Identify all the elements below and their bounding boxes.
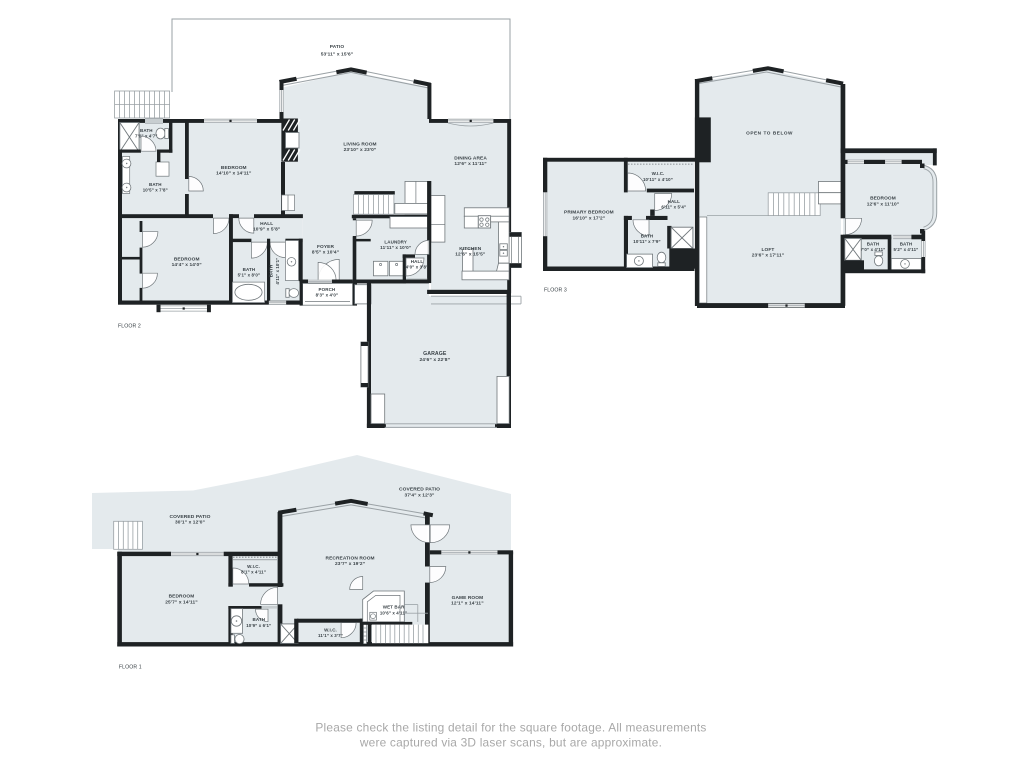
svg-text:53’11” x 15’6”: 53’11” x 15’6” [321, 52, 354, 58]
svg-text:10’9” x 5’8”: 10’9” x 5’8” [253, 227, 281, 233]
svg-text:HALL: HALL [668, 199, 681, 204]
svg-text:GARAGE: GARAGE [423, 351, 447, 357]
svg-text:LIVING ROOM: LIVING ROOM [343, 142, 376, 148]
svg-text:14’10” x 14’11”: 14’10” x 14’11” [216, 171, 252, 177]
svg-text:were captured via 3D laser sca: were captured via 3D laser scans, but ar… [359, 736, 662, 750]
svg-text:12’6” x 11’10”: 12’6” x 11’10” [867, 202, 900, 208]
svg-text:12’6” x 15’5”: 12’6” x 15’5” [455, 252, 486, 258]
svg-text:DINING AREA: DINING AREA [454, 156, 487, 162]
svg-text:5’2” x 4’11”: 5’2” x 4’11” [894, 247, 919, 252]
svg-text:11’11” x 10’0”: 11’11” x 10’0” [380, 245, 411, 250]
svg-text:7’0” x 4’7”: 7’0” x 4’7” [135, 134, 158, 139]
svg-text:LOFT: LOFT [762, 247, 775, 253]
svg-text:25’7” x 14’11”: 25’7” x 14’11” [165, 599, 198, 605]
svg-text:Please check the listing detai: Please check the listing detail for the … [315, 721, 706, 735]
svg-text:OPEN TO BELOW: OPEN TO BELOW [746, 131, 793, 136]
svg-text:BATH: BATH [269, 265, 274, 278]
svg-text:COVERED PATIO: COVERED PATIO [399, 487, 440, 493]
svg-text:PATIO: PATIO [330, 44, 345, 50]
svg-text:BATH: BATH [253, 617, 266, 622]
svg-text:6’11” x 5’4”: 6’11” x 5’4” [661, 205, 686, 210]
svg-text:BATH: BATH [140, 128, 153, 133]
svg-text:GAME ROOM: GAME ROOM [452, 595, 484, 601]
svg-text:11’1” x 3’7”: 11’1” x 3’7” [318, 633, 343, 638]
svg-text:12’6” x 11’11”: 12’6” x 11’11” [454, 161, 487, 167]
svg-text:W.I.C.: W.I.C. [324, 628, 337, 633]
svg-text:COVERED PATIO: COVERED PATIO [169, 514, 210, 520]
svg-text:BATH: BATH [900, 242, 913, 247]
svg-text:LAUNDRY: LAUNDRY [384, 240, 407, 245]
svg-text:14’4” x 14’0”: 14’4” x 14’0” [172, 262, 203, 268]
svg-text:10’11” x 4’10”: 10’11” x 4’10” [643, 177, 673, 182]
svg-text:10’11” x 7’9”: 10’11” x 7’9” [633, 239, 660, 244]
svg-text:FOYER: FOYER [317, 244, 334, 250]
svg-text:PRIMARY BEDROOM: PRIMARY BEDROOM [564, 210, 614, 216]
svg-text:24’6” x 22’8”: 24’6” x 22’8” [419, 357, 450, 363]
svg-text:W.I.C.: W.I.C. [652, 171, 665, 176]
svg-text:BEDROOM: BEDROOM [870, 196, 896, 202]
svg-text:HALL: HALL [260, 221, 273, 227]
svg-text:23’10” x 23’0”: 23’10” x 23’0” [344, 147, 377, 153]
svg-text:8’3” x 4’0”: 8’3” x 4’0” [316, 293, 339, 298]
svg-text:12’1” x 14’11”: 12’1” x 14’11” [451, 601, 484, 607]
svg-text:BEDROOM: BEDROOM [169, 594, 195, 600]
svg-text:FLOOR 1: FLOOR 1 [119, 665, 142, 671]
svg-text:RECREATION ROOM: RECREATION ROOM [326, 556, 375, 562]
svg-text:8’5” x 10’4”: 8’5” x 10’4” [312, 250, 340, 256]
svg-text:KITCHEN: KITCHEN [459, 246, 481, 252]
svg-text:BEDROOM: BEDROOM [174, 257, 200, 263]
svg-text:10’5” x 7’8”: 10’5” x 7’8” [143, 188, 168, 193]
svg-text:PORCH: PORCH [319, 287, 336, 292]
svg-text:16’10” x 17’2”: 16’10” x 17’2” [572, 216, 605, 222]
svg-text:W.I.C.: W.I.C. [247, 564, 260, 569]
svg-text:HALL: HALL [411, 259, 424, 264]
svg-text:4’11” x 10’1”: 4’11” x 10’1” [275, 258, 280, 285]
svg-text:FLOOR 3: FLOOR 3 [544, 288, 567, 294]
svg-text:4’0” x 3’8”: 4’0” x 3’8” [406, 265, 429, 270]
svg-text:BATH: BATH [149, 182, 162, 187]
svg-text:BEDROOM: BEDROOM [221, 165, 247, 171]
svg-text:23’6” x 17’11”: 23’6” x 17’11” [752, 253, 785, 259]
svg-text:30’1” x 12’0”: 30’1” x 12’0” [175, 520, 206, 526]
svg-text:7’0” x 4’11”: 7’0” x 4’11” [861, 247, 886, 252]
svg-text:10’6” x 4’11”: 10’6” x 4’11” [380, 610, 407, 615]
svg-text:BATH: BATH [867, 242, 880, 247]
svg-text:23’7” x 19’2”: 23’7” x 19’2” [335, 561, 366, 567]
svg-text:37’4” x 12’3”: 37’4” x 12’3” [404, 493, 435, 499]
svg-text:8’1” x 4’11”: 8’1” x 4’11” [241, 570, 266, 575]
svg-text:BATH: BATH [243, 267, 256, 272]
svg-text:BATH: BATH [641, 234, 654, 239]
svg-text:FLOOR 2: FLOOR 2 [118, 324, 141, 330]
svg-text:WET BAR: WET BAR [383, 605, 405, 610]
svg-text:5’1” x 8’0”: 5’1” x 8’0” [238, 273, 261, 278]
svg-text:10’9” x 6’1”: 10’9” x 6’1” [246, 623, 271, 628]
